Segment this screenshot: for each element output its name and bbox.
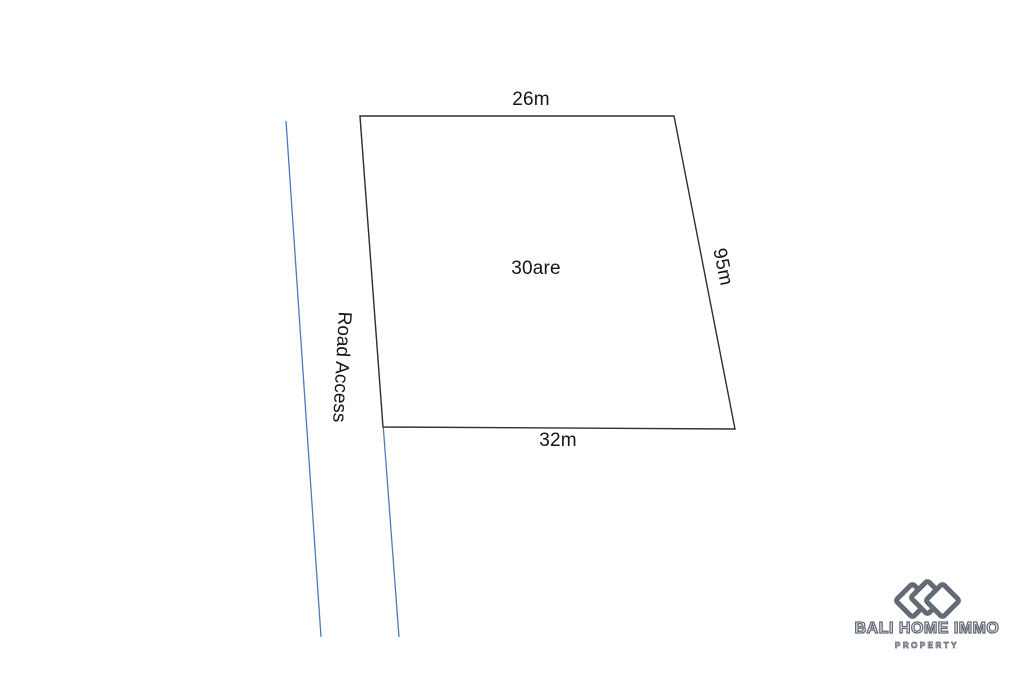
brand-tagline: PROPERTY [844,641,1010,650]
brand-logo: BALI HOME IMMO PROPERTY [844,580,1010,650]
site-plan-page: 26m 95m 32m 30are Road Access BALI HOME … [0,0,1024,683]
brand-name: BALI HOME IMMO [844,620,1010,638]
plot-area-label: 30are [511,258,561,280]
top-dimension-label: 26m [512,89,550,111]
logo-diamonds-icon [896,580,958,614]
bottom-dimension-label: 32m [539,430,577,452]
road-line-outer [286,121,321,637]
